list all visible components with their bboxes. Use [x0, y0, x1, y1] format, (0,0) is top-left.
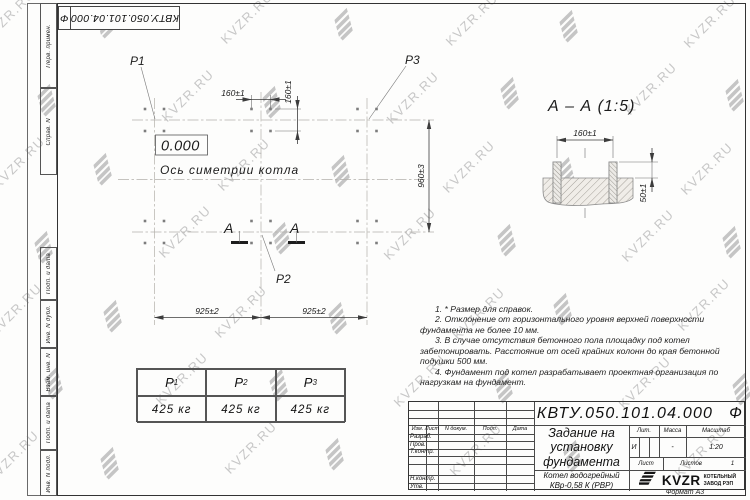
scale-label: Масштаб [686, 425, 746, 437]
sheet-label: Лист [629, 457, 663, 470]
product-name: Котел водогрейный КВр-0,58 К (РВР) [536, 470, 627, 491]
dim-160-horizontal: 160±1 [221, 88, 245, 98]
load-value-p1: 425 кг [137, 396, 206, 423]
col-podp: Подп. [474, 425, 506, 434]
section-letter-left: А [223, 220, 233, 236]
marker-p3: P3 [405, 53, 420, 67]
marker-p1: P1 [130, 54, 145, 68]
col-data: Дата [506, 425, 534, 434]
row-utv: Утв. [410, 483, 438, 491]
document-title: Задание на установку фундамента [536, 425, 627, 470]
col-izm: Изм. [409, 425, 426, 434]
lit-label: Лит. [629, 425, 659, 437]
load-header-p2: P2 [206, 369, 275, 396]
row-razrab: Разраб. [410, 434, 438, 442]
section-view [543, 136, 658, 218]
load-header-p3: P3 [276, 369, 345, 396]
brand-text: KVZR [662, 473, 701, 488]
drawing-content: Перв. примен. Справ. N Подп. и дата Инв.… [0, 0, 750, 500]
note-3: 3. В случае отсутствия бетонного пола пл… [420, 335, 720, 366]
anchor-stud-right [609, 162, 617, 203]
note-4: 4. Фундамент под котел разрабатывает про… [420, 367, 720, 388]
plan-dimensions [155, 95, 430, 318]
marker-p2: P2 [276, 272, 291, 286]
company-name: КОТЕЛЬНЫЙ ЗАВОД РЭП [704, 474, 737, 487]
row-prov: Пров. [410, 441, 438, 449]
dim-925-left: 925±2 [195, 306, 219, 316]
sheets-value: 1 [719, 457, 746, 470]
designation-suffix: Ф [729, 405, 743, 423]
note-1: 1. * Размер для справок. [420, 304, 720, 314]
company-logo-block: KVZR КОТЕЛЬНЫЙ ЗАВОД РЭП [629, 470, 746, 491]
title-block: Изм. Лист N докум. Подп. Дата Разраб. Пр… [408, 401, 745, 490]
dim-160-vertical: 160±1 [283, 80, 293, 104]
dim-960: 960±3 [416, 164, 426, 188]
anchor-stud-left [553, 162, 561, 203]
drawing-sheet: KVZR.RUKVZR.RUKVZR.RUKVZR.RUKVZR.RUKVZR.… [0, 0, 750, 500]
load-header-p1: P1 [137, 369, 206, 396]
kvzr-logo-icon [639, 471, 659, 490]
section-dim-50: 50±1 [638, 183, 648, 202]
format-label: Формат А3 [630, 489, 740, 496]
row-nkontr: Н.контр. [410, 475, 438, 483]
load-values-table: P1 P2 P3 425 кг 425 кг 425 кг [136, 368, 346, 422]
scale-value: 1:20 [686, 437, 746, 457]
section-letter-right: А [289, 220, 299, 236]
technical-notes: 1. * Размер для справок. 2. Отклонение о… [420, 304, 720, 388]
load-value-p3: 425 кг [276, 396, 345, 423]
dim-925-right: 925±2 [302, 306, 326, 316]
mass-value: - [659, 437, 686, 457]
elevation-value: 0.000 [161, 139, 200, 155]
designation: КВТУ.050.101.04.000 Ф [534, 402, 746, 425]
load-value-p2: 425 кг [206, 396, 275, 423]
boiler-axis-label: Ось симетрии котла [160, 163, 299, 177]
mass-label: Масса [659, 425, 686, 437]
section-title: А – А (1:5) [547, 98, 635, 115]
col-ndokum: N докум. [438, 425, 474, 434]
lit-value: И [629, 437, 639, 457]
row-tkontr: Т.контр. [410, 449, 438, 457]
col-list: Лист [426, 425, 438, 434]
section-dim-160: 160±1 [573, 128, 597, 138]
note-2: 2. Отклонение от горизонтального уровня … [420, 314, 720, 335]
sheets-label: Листов [663, 457, 719, 470]
plan-axis-lines [118, 92, 434, 325]
